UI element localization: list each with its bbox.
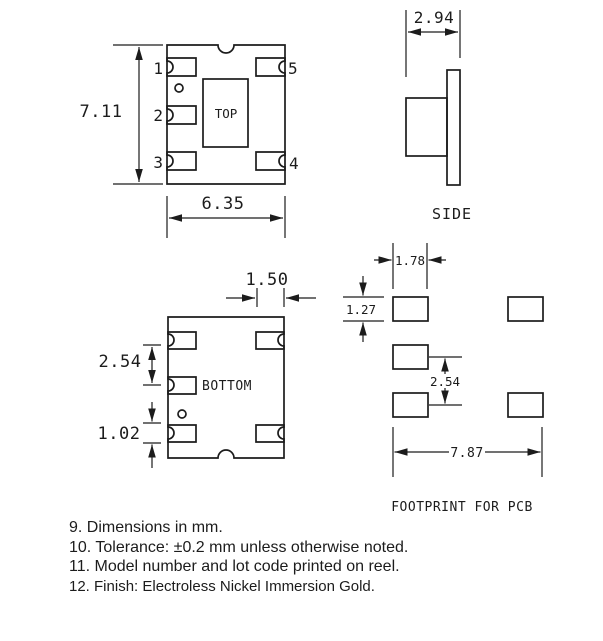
side-body-rect: [406, 98, 447, 156]
top-pad-3: [167, 152, 196, 170]
footprint-label: FOOTPRINT FOR PCB: [391, 500, 533, 515]
footprint-pad-left-2: [393, 345, 428, 369]
top-view: 1 2 3 5 4 TOP 7.11 6.35: [80, 45, 299, 238]
pin-number-4: 4: [289, 154, 299, 173]
note-line-10: 10. Tolerance: ±0.2 mm unless otherwise …: [69, 538, 408, 558]
pin-number-5: 5: [288, 59, 298, 78]
package-drawing: 1 2 3 5 4 TOP 7.11 6.35 2.94: [0, 0, 603, 520]
pin-number-1: 1: [153, 59, 163, 78]
footprint-pad-right-1: [508, 297, 543, 321]
top-pad-2: [167, 106, 196, 124]
dim-label-fp-pad-pitch: 2.54: [430, 374, 460, 389]
pin-number-2: 2: [153, 106, 163, 125]
pcb-footprint: 1.78 1.27 2.54 7.87 FOOTPRINT FOR PCB: [343, 243, 543, 515]
bottom-pad-left-2: [168, 377, 196, 394]
pin-number-3: 3: [153, 153, 163, 172]
side-view: 2.94 SIDE: [406, 8, 472, 223]
note-line-9: 9. Dimensions in mm.: [69, 518, 408, 538]
bottom-pad-left-3: [168, 425, 196, 442]
bottom-view: BOTTOM 1.50 2.54 1.02: [98, 270, 316, 468]
top-pad-5: [256, 58, 285, 76]
dim-label-pad-pitch: 2.54: [99, 352, 142, 372]
note-line-11: 11. Model number and lot code printed on…: [69, 557, 408, 577]
dim-label-width: 6.35: [202, 194, 245, 214]
notes-list: 9. Dimensions in mm. 10. Tolerance: ±0.2…: [69, 518, 408, 596]
dim-label-pad-width: 1.50: [246, 270, 289, 290]
side-flange-rect: [447, 70, 460, 185]
dim-label-side-width: 2.94: [414, 8, 455, 27]
dim-label-height: 7.11: [80, 102, 123, 122]
top-view-label: TOP: [215, 106, 238, 121]
bottom-view-label: BOTTOM: [202, 379, 252, 394]
dim-label-pad-height: 1.02: [98, 424, 141, 444]
bottom-pad-right-1: [256, 332, 284, 349]
dim-label-fp-pad-height: 1.27: [346, 302, 376, 317]
mechanical-drawing-page: 1 2 3 5 4 TOP 7.11 6.35 2.94: [0, 0, 603, 641]
bottom-pad-left-1: [168, 332, 196, 349]
side-view-label: SIDE: [432, 205, 472, 223]
footprint-pad-left-1: [393, 297, 428, 321]
bottom-pad-right-2: [256, 425, 284, 442]
top-pin1-marker: [175, 84, 183, 92]
dim-label-fp-pad-width: 1.78: [395, 253, 425, 268]
footprint-pad-right-2: [508, 393, 543, 417]
note-line-12: 12. Finish: Electroless Nickel Immersion…: [69, 577, 408, 597]
top-pad-1: [167, 58, 196, 76]
footprint-pad-left-3: [393, 393, 428, 417]
dim-label-fp-span: 7.87: [450, 446, 483, 461]
bottom-pin1-marker: [178, 410, 186, 418]
top-pad-4: [256, 152, 285, 170]
